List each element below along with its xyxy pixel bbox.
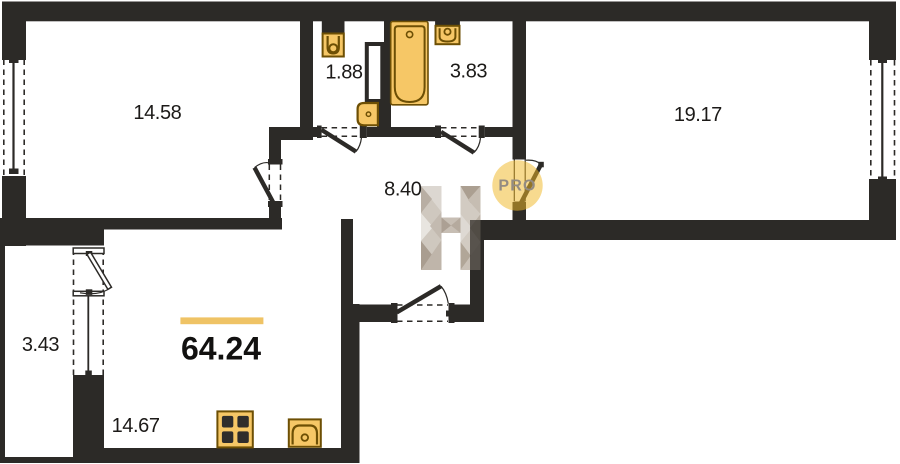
svg-text:3.83: 3.83: [450, 60, 488, 82]
svg-text:14.58: 14.58: [133, 102, 181, 124]
svg-text:8.40: 8.40: [384, 178, 422, 200]
svg-text:64.24: 64.24: [181, 331, 261, 367]
svg-text:14.67: 14.67: [112, 415, 160, 437]
svg-text:3.43: 3.43: [22, 334, 60, 356]
svg-text:19.17: 19.17: [674, 104, 722, 126]
svg-text:1.88: 1.88: [325, 62, 363, 84]
svg-text:PRO: PRO: [498, 177, 536, 194]
